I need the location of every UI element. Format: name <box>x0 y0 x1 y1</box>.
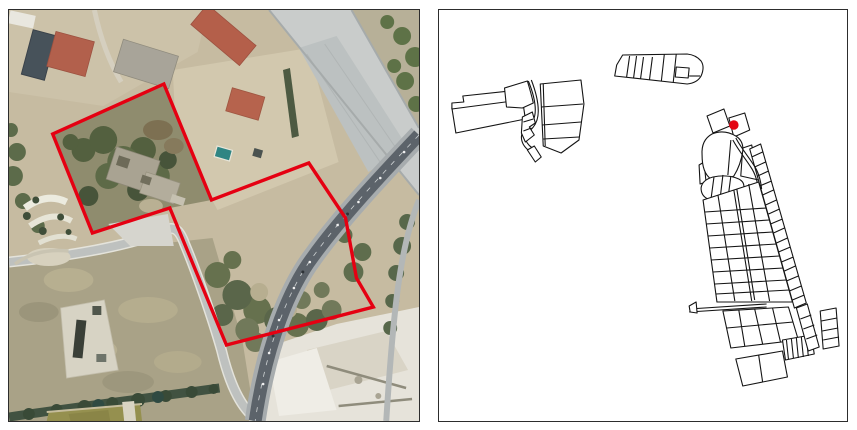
vehicles <box>379 177 382 180</box>
dirt-patch <box>143 120 173 140</box>
cluster-b-tall-block <box>505 81 534 108</box>
cadastral-panel <box>438 9 848 422</box>
cluster-c-bottom-parcel <box>736 351 788 386</box>
overgrown-vegetation <box>63 134 79 150</box>
trees-top-right <box>380 15 394 29</box>
vehicles <box>336 224 339 227</box>
location-marker-dot <box>729 120 739 130</box>
trees-top-right <box>393 27 411 45</box>
trees-top-right <box>387 59 401 73</box>
vehicles <box>357 201 360 204</box>
quarry-rubble <box>375 393 381 399</box>
cluster-b-trapezoid <box>540 80 584 153</box>
scrub-lower-arm <box>223 251 241 269</box>
trees-top-right <box>396 72 414 90</box>
vehicles <box>403 151 406 154</box>
vehicles <box>262 383 265 386</box>
quarry-rubble <box>354 376 362 384</box>
satellite-panel <box>8 9 420 422</box>
vehicles <box>268 352 271 355</box>
vehicles <box>309 261 312 264</box>
vehicles <box>278 319 281 322</box>
cadastral-parcel-map <box>439 10 847 421</box>
cluster-c-top-parcel-1 <box>707 109 730 133</box>
figure-two-panel-map <box>0 0 857 430</box>
satellite-aerial-photo <box>9 10 419 421</box>
vehicles <box>293 287 296 290</box>
